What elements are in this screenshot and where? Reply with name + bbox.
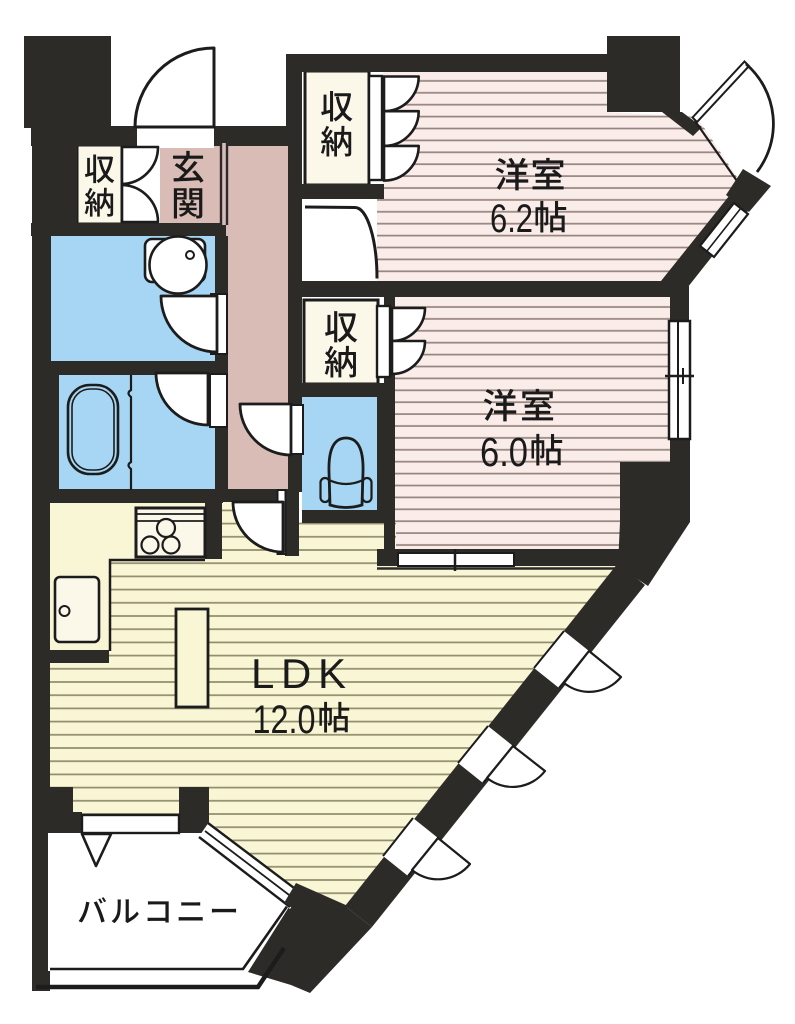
svg-text:6.2: 6.2 <box>490 197 533 241</box>
svg-text:12.0: 12.0 <box>253 698 316 742</box>
svg-text:6.0: 6.0 <box>480 429 528 475</box>
svg-text:LDK: LDK <box>251 650 346 697</box>
